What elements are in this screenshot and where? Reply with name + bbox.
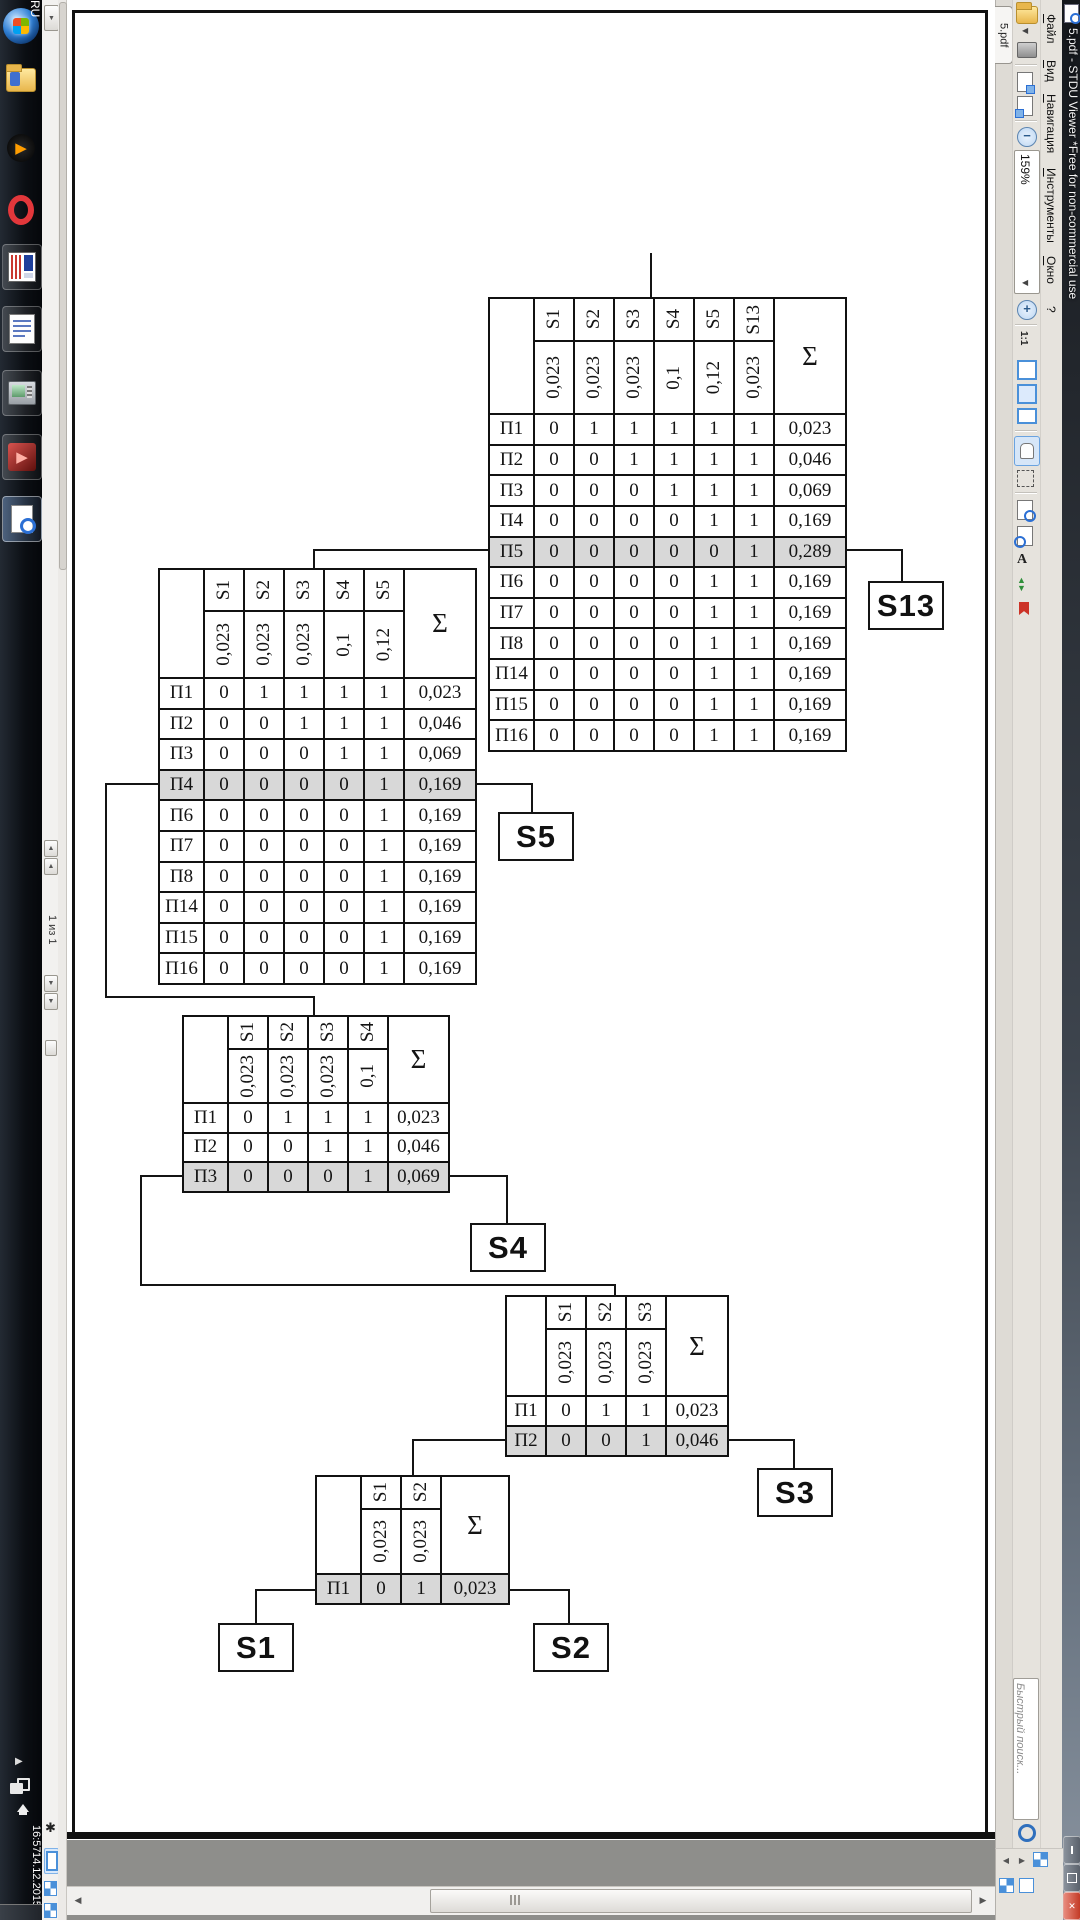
app-icon: [1064, 4, 1079, 23]
network-icon[interactable]: [10, 1778, 30, 1794]
clock-time: 16:57: [0, 1825, 42, 1853]
screen: A S10,023S20,023S30,023S40,1S50,12S130,0…: [0, 0, 1080, 1920]
menu-item-инструменты[interactable]: Инструменты: [1044, 168, 1058, 243]
menu-item-файл[interactable]: Файл: [1044, 14, 1058, 44]
layout-facing-pages-button[interactable]: [44, 1876, 57, 1900]
scrollbar-grip: [518, 1895, 520, 1905]
speaker-icon[interactable]: [13, 1802, 29, 1818]
taskbar-clock[interactable]: 16:5714.12.2015: [0, 1834, 42, 1898]
document-tab[interactable]: 5.pdf: [995, 6, 1013, 64]
menu-item-вид[interactable]: Вид: [1044, 60, 1058, 82]
page-indicator: 1 из 1: [43, 880, 58, 980]
layout-single-page-button[interactable]: [44, 1848, 59, 1874]
copy-page-button[interactable]: [1017, 96, 1033, 116]
open-dropdown-arrow-icon[interactable]: ◀: [1022, 26, 1028, 35]
prev-view-arrow-icon[interactable]: ◀: [999, 1852, 1013, 1868]
zoom-region-button[interactable]: [1017, 500, 1033, 520]
hand-tool-button-selected[interactable]: [1014, 436, 1040, 466]
taskbar-item-stdu-viewer-active[interactable]: [2, 496, 42, 542]
magnifier-page-icon: [1017, 500, 1033, 520]
text-document-icon: [9, 314, 35, 344]
grid-view-icon[interactable]: [1033, 1852, 1048, 1867]
panel-toggle-button[interactable]: ▼: [44, 5, 59, 31]
export-page-button[interactable]: [1017, 72, 1033, 92]
stdu-viewer-icon: [11, 505, 33, 533]
menu-item-help[interactable]: ?: [1044, 306, 1058, 313]
taskbar-item-media-classic[interactable]: ▶: [2, 434, 42, 480]
play-icon: ▶: [7, 134, 35, 162]
add-bookmark-button[interactable]: [1019, 602, 1029, 615]
search-button[interactable]: [1018, 1824, 1036, 1842]
taskbar-item-wordpad[interactable]: [2, 306, 42, 352]
red-flag-icon: [1019, 602, 1029, 615]
copy-page-icon: [1017, 96, 1033, 116]
taskbar-item-computer[interactable]: [2, 370, 42, 416]
bookmark-icon[interactable]: [45, 1040, 57, 1056]
print-button[interactable]: [1017, 42, 1037, 58]
window-title: 5.pdf - STDU Viewer *Free for non-commer…: [1063, 28, 1080, 1528]
magnifier-page-icon: [1017, 526, 1033, 546]
taskbar-item-document-app[interactable]: [2, 244, 42, 290]
zoom-out-icon: −: [1017, 127, 1037, 147]
navigate-arrows-button[interactable]: ▲▼: [1017, 576, 1026, 592]
page-border-left: [72, 10, 75, 1836]
folder-icon: [6, 68, 36, 92]
tab-strip: [995, 0, 1013, 1920]
page-border-top: [72, 10, 988, 13]
zoom-dropdown-arrow-icon[interactable]: ◀: [1022, 278, 1028, 287]
layout-continuous-button[interactable]: [44, 1898, 57, 1920]
printer-icon: [1017, 42, 1037, 58]
striped-book-icon: [8, 252, 36, 282]
export-page-icon: [1017, 72, 1033, 92]
zoom-dynamic-button[interactable]: [1017, 526, 1033, 546]
pages-view-icon[interactable]: [999, 1878, 1014, 1893]
taskbar-item-file-manager[interactable]: [2, 58, 40, 102]
show-hidden-icons-arrow[interactable]: ▶: [15, 1756, 23, 1767]
fit-page-icon: [1017, 384, 1037, 404]
taskbar: ▶ ▶ RU ▶ 16:5714.12.2015: [0, 0, 42, 1920]
scrollbar-grip: [510, 1895, 512, 1905]
maximize-button[interactable]: [1063, 1864, 1080, 1892]
select-tool-button[interactable]: [1017, 470, 1034, 487]
previous-page-button[interactable]: ▲: [44, 858, 58, 875]
open-file-button[interactable]: [1016, 6, 1038, 24]
fit-visible-button[interactable]: [1017, 408, 1037, 424]
page-border-right: [985, 10, 988, 1836]
fit-width-button[interactable]: [1017, 360, 1037, 380]
menu-item-окно[interactable]: Окно: [1044, 256, 1058, 284]
quick-search-placeholder: Быстрый поиск...: [1014, 1683, 1026, 1774]
pages-view-icon[interactable]: [1019, 1878, 1034, 1893]
secondary-scrollbar-thumb[interactable]: [59, 2, 67, 570]
language-indicator[interactable]: RU: [0, 0, 42, 17]
next-page-button[interactable]: ▼: [44, 975, 58, 992]
minimize-button[interactable]: [1063, 1836, 1080, 1864]
clock-date: 14.12.2015: [0, 1852, 42, 1907]
fit-visible-icon: [1017, 408, 1037, 424]
brightness-icon[interactable]: ✱: [45, 1820, 56, 1836]
selection-icon: [1017, 470, 1034, 487]
open-folder-icon: [1016, 6, 1038, 24]
last-page-button[interactable]: ▼: [44, 993, 58, 1010]
first-page-button[interactable]: ▲: [44, 840, 58, 857]
computer-icon: [8, 381, 36, 405]
zoom-in-icon: +: [1017, 300, 1037, 320]
fit-width-icon: [1017, 360, 1037, 380]
scroll-right-arrow-icon[interactable]: ▶: [973, 1890, 993, 1910]
page-border-bottom: [66, 1832, 995, 1839]
scrollbar-grip: [514, 1895, 516, 1905]
scroll-left-arrow-icon[interactable]: ◀: [68, 1890, 88, 1910]
menubar: [1040, 0, 1063, 1920]
zoom-level-value: 159%: [1018, 154, 1032, 185]
zoom-out-button[interactable]: −: [1017, 127, 1037, 147]
quick-search-input[interactable]: Быстрый поиск...: [1013, 1678, 1039, 1820]
red-play-icon: ▶: [8, 443, 36, 471]
find-text-button[interactable]: A: [1017, 552, 1027, 568]
hand-icon: [1020, 443, 1034, 459]
fit-page-button[interactable]: [1017, 384, 1037, 404]
menu-item-навигация[interactable]: Навигация: [1044, 94, 1058, 153]
pdf-page: [66, 0, 995, 1840]
search-icon: [1018, 1824, 1036, 1842]
opera-icon: [8, 195, 34, 225]
close-button[interactable]: ✕: [1063, 1892, 1080, 1920]
actual-size-button[interactable]: 1:1: [1018, 331, 1029, 345]
show-desktop-button[interactable]: [0, 1904, 42, 1920]
taskbar-item-media-player[interactable]: ▶: [2, 126, 40, 170]
next-view-arrow-icon[interactable]: ▶: [1015, 1852, 1029, 1868]
taskbar-item-opera[interactable]: [2, 188, 40, 232]
zoom-in-button[interactable]: +: [1017, 300, 1037, 320]
